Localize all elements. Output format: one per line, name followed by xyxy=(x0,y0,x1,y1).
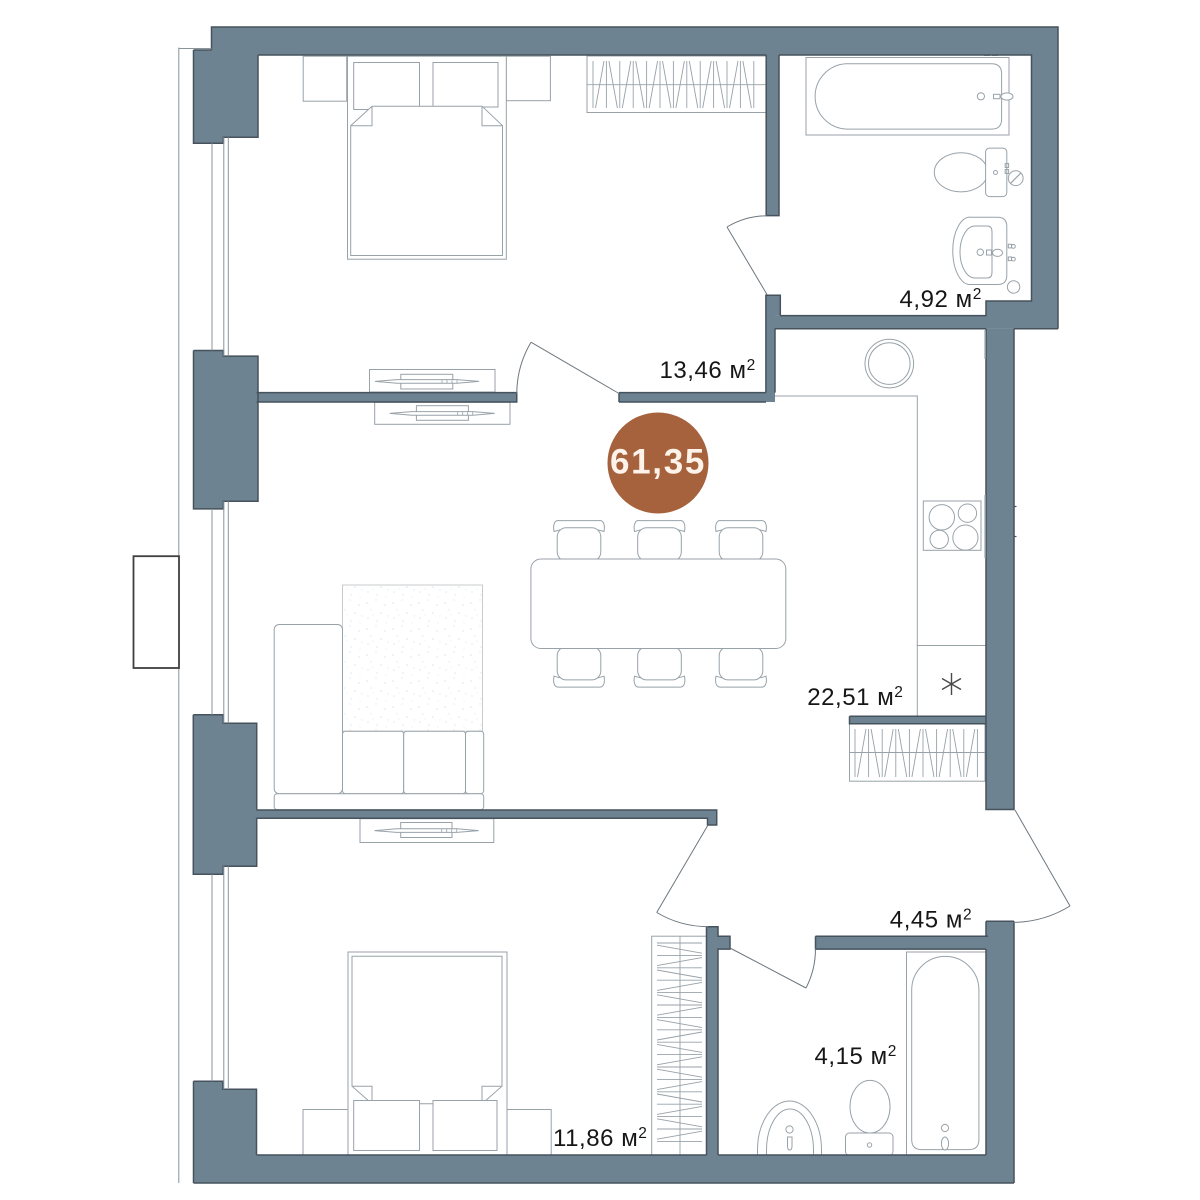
svg-text:13,46 м2: 13,46 м2 xyxy=(660,357,756,384)
svg-text:4,92 м2: 4,92 м2 xyxy=(900,286,982,313)
svg-text:11,86 м2: 11,86 м2 xyxy=(553,1125,647,1152)
svg-text:22,51 м2: 22,51 м2 xyxy=(807,684,903,711)
svg-text:61,35: 61,35 xyxy=(610,443,706,482)
svg-text:4,15 м2: 4,15 м2 xyxy=(815,1043,897,1070)
svg-text:4,45 м2: 4,45 м2 xyxy=(890,906,972,933)
